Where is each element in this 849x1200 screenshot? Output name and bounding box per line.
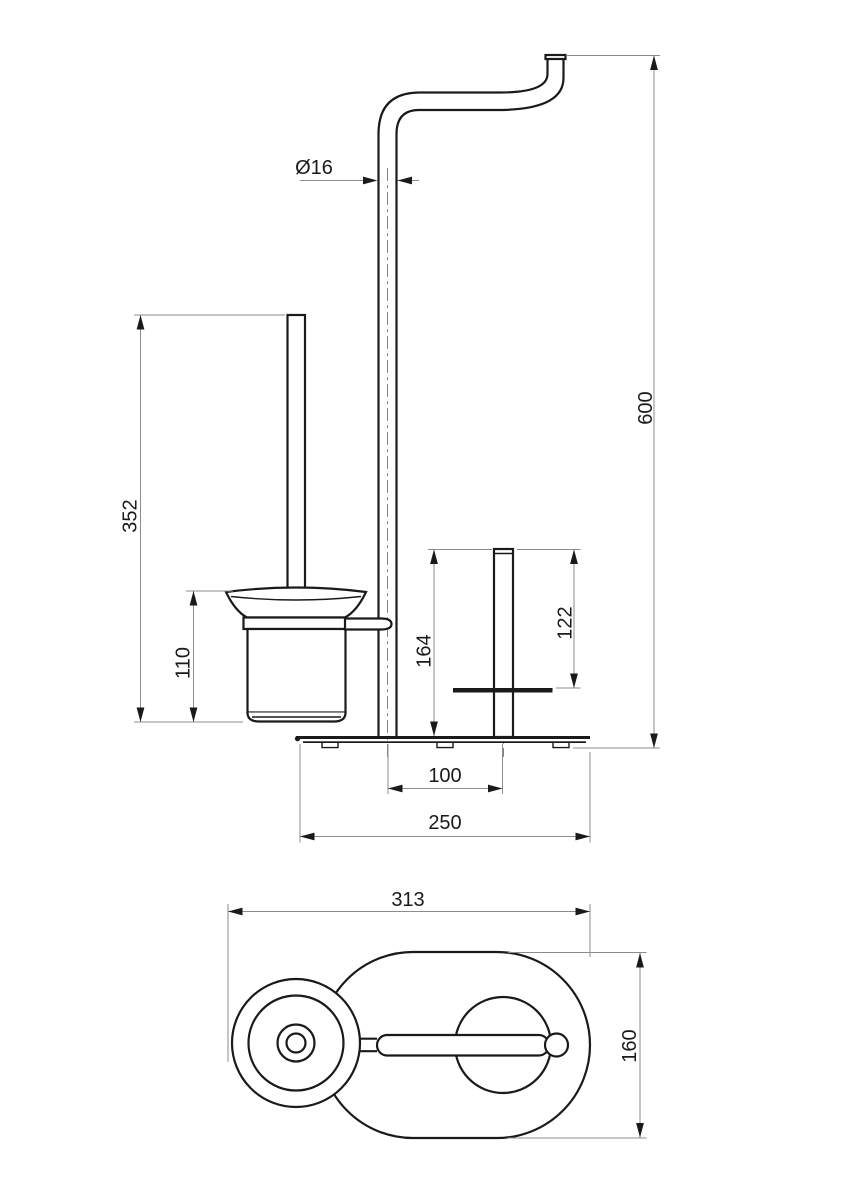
dim-label-pipe-diameter: Ø16: [295, 157, 333, 179]
roll-post: [494, 549, 513, 737]
arrowhead: [363, 177, 378, 185]
base-foot-left: [322, 743, 338, 748]
front-view: [226, 55, 590, 757]
dim-label-base-width: 160: [619, 1029, 641, 1062]
base-plate-bottom-line: [303, 741, 586, 743]
roll-holder-unit: [453, 549, 553, 737]
arrowhead: [398, 177, 413, 185]
stand-pipe: [379, 55, 566, 737]
arrowhead: [576, 908, 591, 916]
arrowhead: [430, 550, 438, 565]
toilet-brush-unit: [226, 315, 392, 722]
dimension-total-height: 600: [566, 56, 660, 749]
base-foot-middle: [437, 743, 453, 748]
base-plate-left-lip: [295, 736, 300, 741]
plan-view: [232, 952, 590, 1138]
dim-label-cup-height: 110: [173, 647, 195, 679]
pipe-end-cap: [546, 55, 566, 59]
arrowhead: [190, 591, 198, 606]
dim-lines: [428, 550, 492, 737]
brush-handle-center: [287, 1034, 306, 1053]
spindle-end-knob: [545, 1034, 568, 1057]
dimension-post-spacing: 100: [388, 744, 503, 794]
dim-label-post-spacing: 100: [428, 765, 461, 787]
dim-label-post-to-rest: 122: [555, 606, 577, 639]
dim-label-total-height: 600: [635, 391, 657, 424]
pipe-outer-edge: [379, 59, 548, 737]
dim-label-roll-post-height: 164: [414, 634, 436, 667]
dimension-roll-post-height: 164: [414, 550, 493, 737]
technical-drawing-page: Ø16 600 352 110 164: [0, 0, 849, 1200]
dimension-base-length: 250: [300, 744, 590, 843]
arrowhead: [190, 708, 198, 723]
arrowhead: [228, 908, 243, 916]
arrowhead: [650, 56, 658, 71]
base-plate-top-line: [296, 736, 590, 739]
cup-body: [248, 629, 346, 713]
arrowhead: [430, 722, 438, 737]
dimension-cup-height: 110: [173, 591, 234, 722]
arrowhead: [388, 785, 403, 793]
arrowhead: [636, 1123, 644, 1138]
roll-spindle-bar: [377, 1035, 549, 1056]
drawing-svg: Ø16 600 352 110 164: [0, 0, 849, 1200]
dim-label-brush-height: 352: [120, 499, 142, 532]
cup-mounting-arm: [345, 619, 392, 630]
brush-handle: [288, 315, 306, 596]
arrowhead: [570, 674, 578, 689]
base-foot-right: [553, 743, 569, 748]
arrowhead: [137, 315, 145, 330]
dim-label-overall-length: 313: [391, 889, 424, 911]
arrowhead: [636, 953, 644, 968]
dimension-pipe-diameter: Ø16: [295, 157, 419, 184]
base-plate: [295, 736, 590, 748]
dimension-post-to-rest: 122: [517, 550, 581, 689]
dim-label-base-length: 250: [428, 812, 461, 834]
arrowhead: [488, 785, 503, 793]
cup-holder-band: [244, 618, 346, 630]
cup-rim: [226, 588, 366, 618]
arrowhead: [650, 734, 658, 749]
arrowhead: [576, 833, 591, 841]
arrowhead: [300, 833, 315, 841]
arrowhead: [137, 708, 145, 723]
roll-rest-bar: [453, 688, 553, 693]
arrowhead: [570, 550, 578, 565]
